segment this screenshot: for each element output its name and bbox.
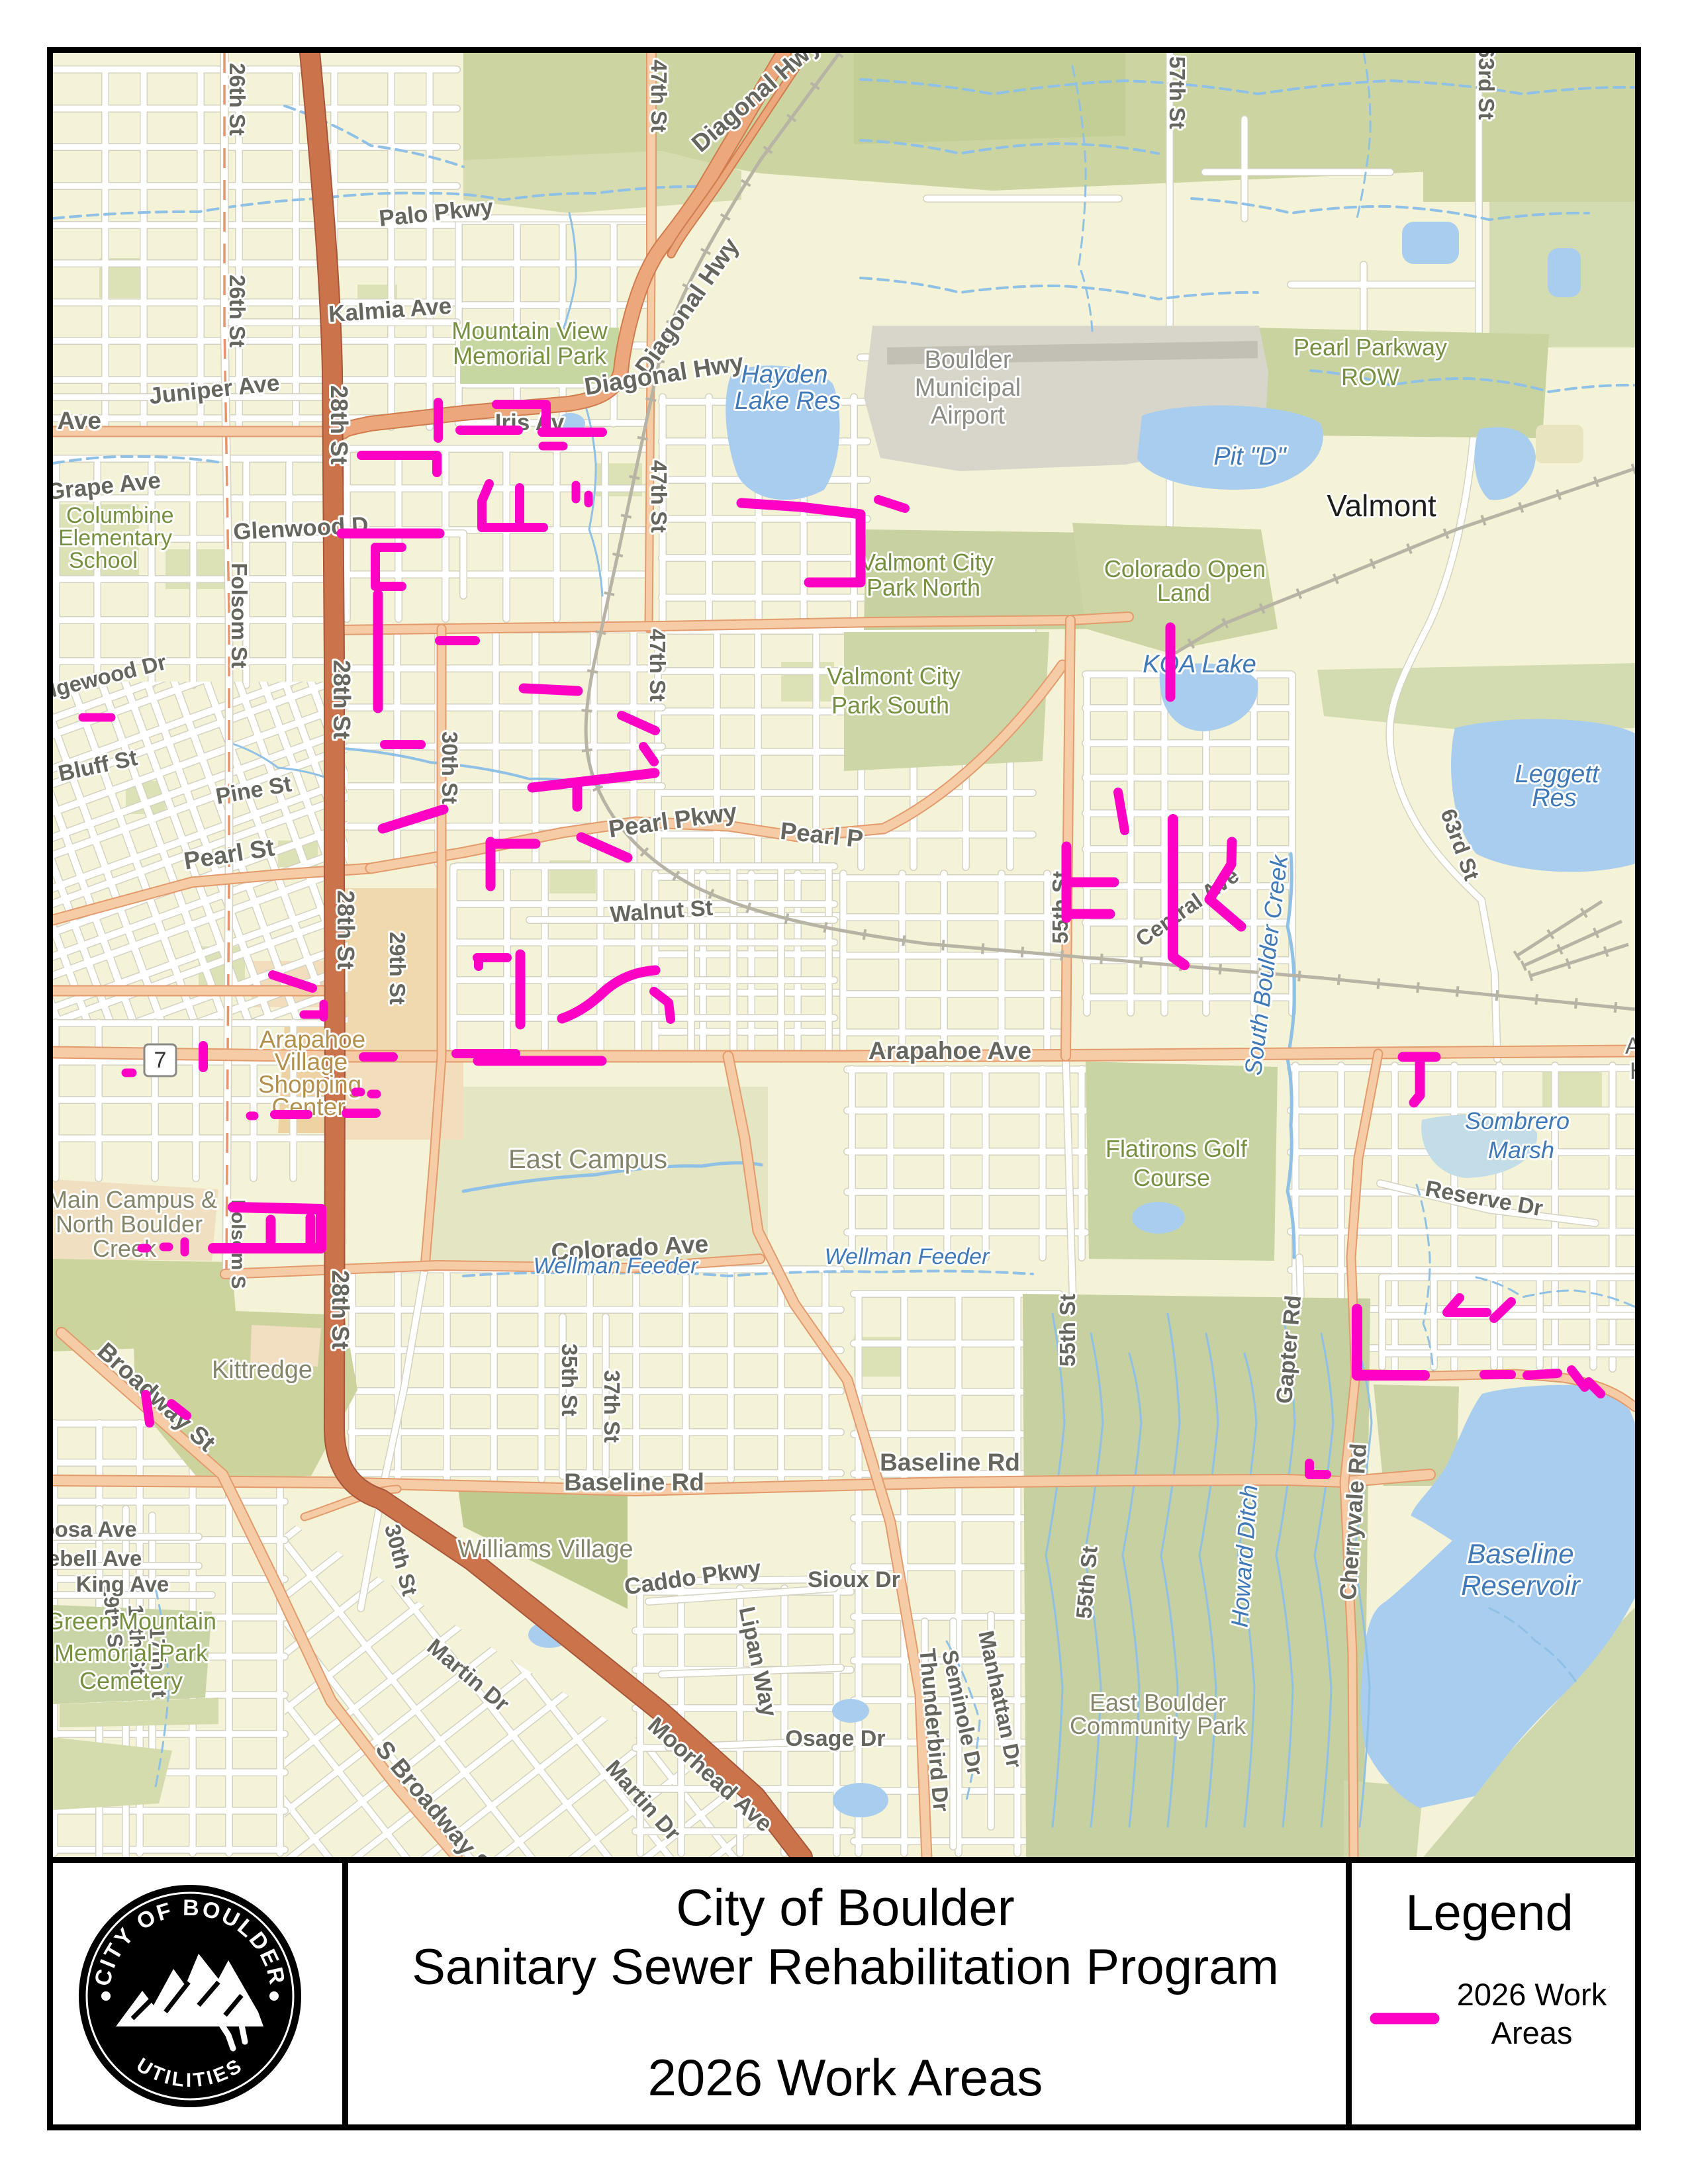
svg-text:Sioux Dr: Sioux Dr — [808, 1567, 900, 1592]
svg-text:Lake Res: Lake Res — [735, 387, 841, 415]
svg-text:28th St: 28th St — [327, 1270, 354, 1349]
svg-text:School: School — [69, 548, 138, 573]
svg-text:Green Mountain: Green Mountain — [46, 1608, 216, 1635]
svg-text:Boulder: Boulder — [925, 346, 1011, 374]
svg-text:Wellman Feeder: Wellman Feeder — [534, 1253, 699, 1279]
svg-text:Folsom St: Folsom St — [227, 563, 252, 668]
svg-text:35th St: 35th St — [557, 1343, 582, 1416]
svg-text:Course: Course — [1133, 1164, 1210, 1191]
svg-text:Baseline Rd: Baseline Rd — [564, 1469, 704, 1496]
svg-text:Reservoir: Reservoir — [1461, 1570, 1581, 1601]
svg-text:Kittredge: Kittredge — [212, 1356, 312, 1384]
svg-text:47th St: 47th St — [645, 629, 670, 702]
svg-text:Hayden: Hayden — [741, 361, 828, 388]
svg-text:Flatirons Golf: Flatirons Golf — [1105, 1135, 1248, 1162]
svg-text:Land: Land — [1157, 579, 1210, 606]
svg-text:28th St: 28th St — [328, 660, 355, 739]
svg-text:Sombrero: Sombrero — [1465, 1107, 1570, 1134]
svg-text:Wellman Feeder: Wellman Feeder — [825, 1244, 990, 1269]
svg-text:Community Park: Community Park — [1070, 1712, 1246, 1739]
svg-text:Osage Dr: Osage Dr — [785, 1726, 885, 1751]
svg-text:North Boulder: North Boulder — [56, 1210, 203, 1238]
svg-text:Williams Village: Williams Village — [457, 1535, 633, 1563]
svg-text:Columbine: Columbine — [66, 503, 174, 528]
svg-text:Main Campus &: Main Campus & — [48, 1186, 217, 1213]
svg-text:Memorial Park: Memorial Park — [453, 342, 607, 369]
svg-text:Legend: Legend — [1405, 1885, 1573, 1941]
svg-text:28th St: 28th St — [326, 385, 353, 465]
svg-text:Park South: Park South — [831, 692, 949, 719]
svg-text:63rd St: 63rd St — [1474, 46, 1499, 120]
svg-text:29th St: 29th St — [385, 932, 410, 1005]
svg-text:Valmont City: Valmont City — [860, 549, 993, 576]
svg-text:Memorial Park: Memorial Park — [54, 1639, 209, 1666]
svg-text:Airport: Airport — [931, 402, 1005, 430]
svg-text:2026 Work Areas: 2026 Work Areas — [648, 2048, 1043, 2107]
svg-text:2026 Work: 2026 Work — [1457, 1977, 1607, 2012]
svg-text:Pearl Parkway: Pearl Parkway — [1293, 334, 1447, 361]
svg-text:26th St: 26th St — [225, 275, 250, 347]
svg-text:Res: Res — [1532, 784, 1577, 812]
svg-text:Baseline Rd: Baseline Rd — [880, 1449, 1020, 1476]
svg-text:Valmont: Valmont — [1327, 488, 1436, 523]
svg-text:KOA Lake: KOA Lake — [1143, 651, 1256, 678]
svg-text:Valmont City: Valmont City — [827, 662, 960, 690]
svg-text:City of Boulder: City of Boulder — [676, 1878, 1015, 1936]
svg-text:37th St: 37th St — [600, 1370, 624, 1443]
svg-text:Arapahoe Ave: Arapahoe Ave — [868, 1037, 1031, 1064]
svg-text:East Campus: East Campus — [508, 1145, 667, 1174]
svg-text:Mountain View: Mountain View — [451, 317, 608, 344]
svg-text:30th St: 30th St — [438, 731, 462, 804]
svg-text:26th St: 26th St — [225, 63, 250, 136]
svg-text:Park North: Park North — [867, 574, 980, 601]
svg-text:Elementary: Elementary — [58, 525, 172, 551]
svg-text:King Ave: King Ave — [76, 1572, 169, 1596]
svg-text:ROW: ROW — [1341, 363, 1399, 390]
svg-text:Baseline: Baseline — [1467, 1538, 1573, 1569]
svg-text:Colorado Open: Colorado Open — [1104, 555, 1266, 582]
svg-text:7: 7 — [154, 1048, 167, 1073]
svg-text:Areas: Areas — [1491, 2015, 1573, 2050]
svg-text:Marsh: Marsh — [1488, 1136, 1554, 1163]
svg-text:47th St: 47th St — [647, 460, 671, 533]
svg-text:Pit "D": Pit "D" — [1213, 443, 1287, 471]
svg-text:57th St: 57th St — [1165, 56, 1190, 129]
svg-text:Sanitary Sewer Rehabilitation: Sanitary Sewer Rehabilitation Program — [412, 1939, 1279, 1995]
svg-text:Municipal: Municipal — [915, 374, 1021, 402]
svg-text:28th St: 28th St — [332, 890, 359, 970]
svg-text:55th St: 55th St — [1055, 1294, 1080, 1367]
svg-text:47th St: 47th St — [647, 60, 671, 132]
svg-text:Cemetery: Cemetery — [79, 1667, 183, 1694]
